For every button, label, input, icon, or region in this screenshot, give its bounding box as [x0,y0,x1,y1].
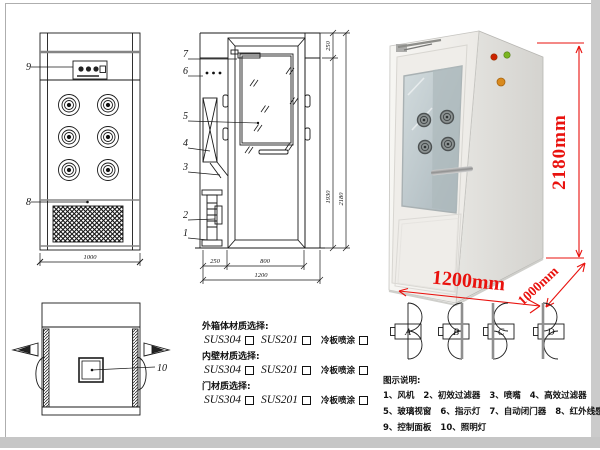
checkbox [359,366,368,375]
dim-1200: 1200 [255,272,269,279]
front-view-drawing: 9 8 1000 [14,20,184,272]
orange-button [497,78,505,86]
checkbox [302,396,311,405]
legend-block: 图示说明: 1、风机 2、初效过滤器 3、喷嘴 4、高效过滤器 5、玻璃视窗 6… [383,374,595,437]
material-option: 冷板喷涂 [321,334,368,346]
material-section-title: 门材质选择: [202,379,388,392]
legend-item: 6、指示灯 [440,405,480,417]
scan-band-bottom [0,437,600,448]
legend-item: 3、喷嘴 [489,389,520,401]
legend-item: 8、红外线感应器 [555,405,600,417]
material-option: 冷板喷涂 [321,394,368,406]
legend-item: 5、玻璃视窗 [383,405,431,417]
product-photo: 2180mm 1200mm 1000mm [380,12,596,314]
nozzles [59,95,119,181]
part-label-5: 5 [183,111,188,122]
legend-item: 1、风机 [383,389,414,401]
checkbox [359,396,368,405]
part-label-10: 10 [157,363,167,374]
dim-250: 250 [210,258,221,265]
part-label-6: 6 [183,66,188,77]
red-indicator-light [491,54,497,60]
glass-hatch [245,68,298,154]
top-view-drawing: 10 [8,295,188,435]
dim-1000: 1000 [84,254,98,261]
dim-800: 800 [260,258,271,265]
material-option: SUS201 [261,364,321,376]
part-label-2: 2 [183,210,188,221]
dim-2180: 2180 [338,192,345,206]
door-config-label-c: C [498,328,505,338]
checkbox [245,366,254,375]
material-section-title: 内壁材质选择: [202,349,388,362]
material-option: SUS304 [204,364,261,376]
photo-dim-height: 2180mm [549,114,570,190]
door-config-label-b: B [453,328,459,338]
legend-title: 图示说明: [383,374,595,386]
material-section-title: 外箱体材质选择: [202,319,388,332]
door-handle [259,150,288,154]
part-label-7: 7 [183,49,189,60]
material-option: SUS304 [204,334,261,346]
green-indicator-light [504,52,510,58]
part-label-3: 3 [182,162,188,173]
checkbox [302,366,311,375]
legend-item: 2、初效过滤器 [423,389,480,401]
door-configuration-icons: A B C D [382,298,582,372]
material-option: SUS201 [261,334,321,346]
material-option: 冷板喷涂 [321,364,368,376]
legend-item: 9、控制面板 [383,421,431,433]
fan-assembly [202,190,222,246]
material-option: SUS201 [261,394,321,406]
door-config-label-a: A [404,328,411,338]
legend-item: 7、自动闭门器 [489,405,546,417]
legend-item: 10、照明灯 [440,421,486,433]
checkbox [245,396,254,405]
checkbox [302,336,311,345]
side-view-drawing: 7 6 5 4 3 2 1 250 1930 2180 250 800 1200 [178,15,363,300]
material-option: SUS304 [204,394,261,406]
material-selection-block: 外箱体材质选择: SUS304 SUS201 冷板喷涂 内壁材质选择: SUS3… [200,316,388,409]
legend-item: 4、高效过滤器 [530,389,587,401]
part-label-4: 4 [183,138,188,149]
air-shower-spec-sheet: 9 8 1000 [0,0,600,450]
return-air-grille [53,206,123,242]
checkbox [359,336,368,345]
checkbox [245,336,254,345]
dim-1930: 1930 [325,190,332,204]
part-label-9: 9 [26,62,31,73]
dim-top-250: 250 [325,40,332,51]
door-config-label-d: D [547,328,555,338]
part-label-1: 1 [183,228,188,239]
part-label-8: 8 [26,197,31,208]
